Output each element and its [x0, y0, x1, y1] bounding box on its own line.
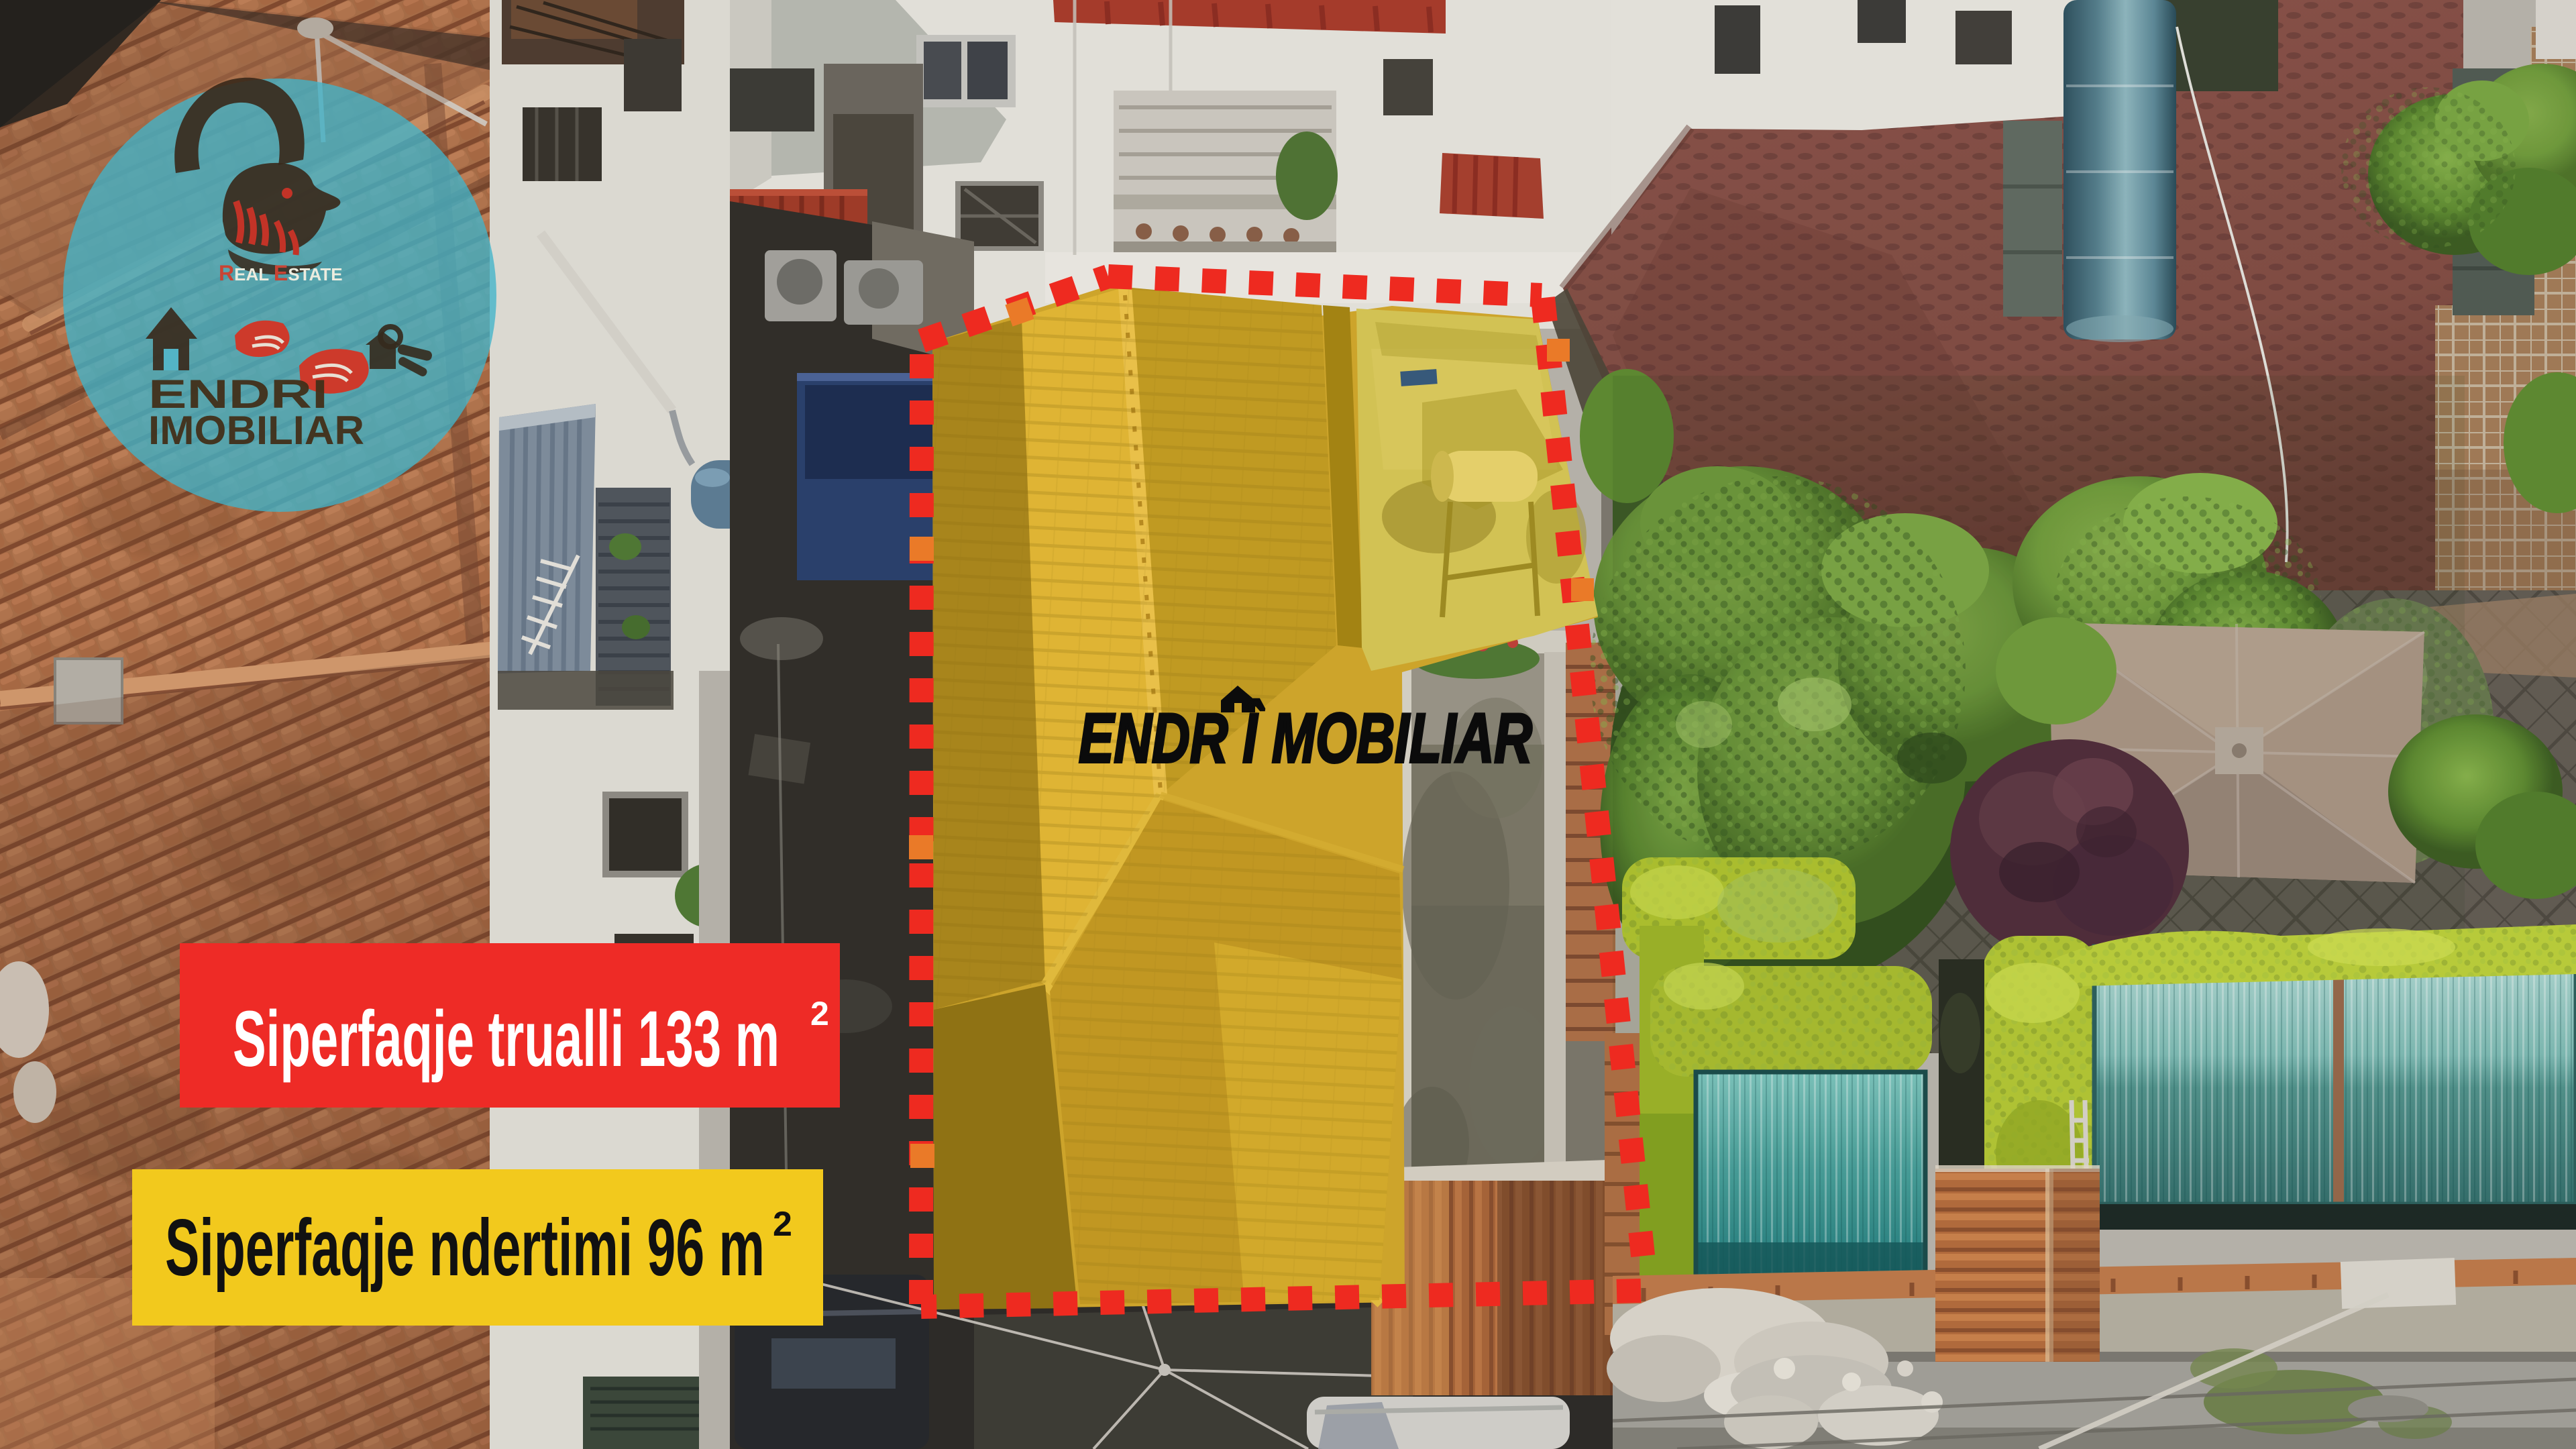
svg-text:2: 2 — [810, 995, 829, 1032]
svg-text:Siperfaqje trualli 133 m: Siperfaqje trualli 133 m — [233, 995, 780, 1083]
svg-text:2: 2 — [773, 1205, 792, 1244]
svg-text:REAL ESTATE: REAL ESTATE — [219, 261, 343, 285]
svg-text:Siperfaqje ndertimi 96 m: Siperfaqje ndertimi 96 m — [165, 1203, 765, 1293]
svg-text:ENDR Î MOBILIAR: ENDR Î MOBILIAR — [1079, 700, 1532, 777]
svg-text:IMOBILIAR: IMOBILIAR — [148, 408, 364, 453]
